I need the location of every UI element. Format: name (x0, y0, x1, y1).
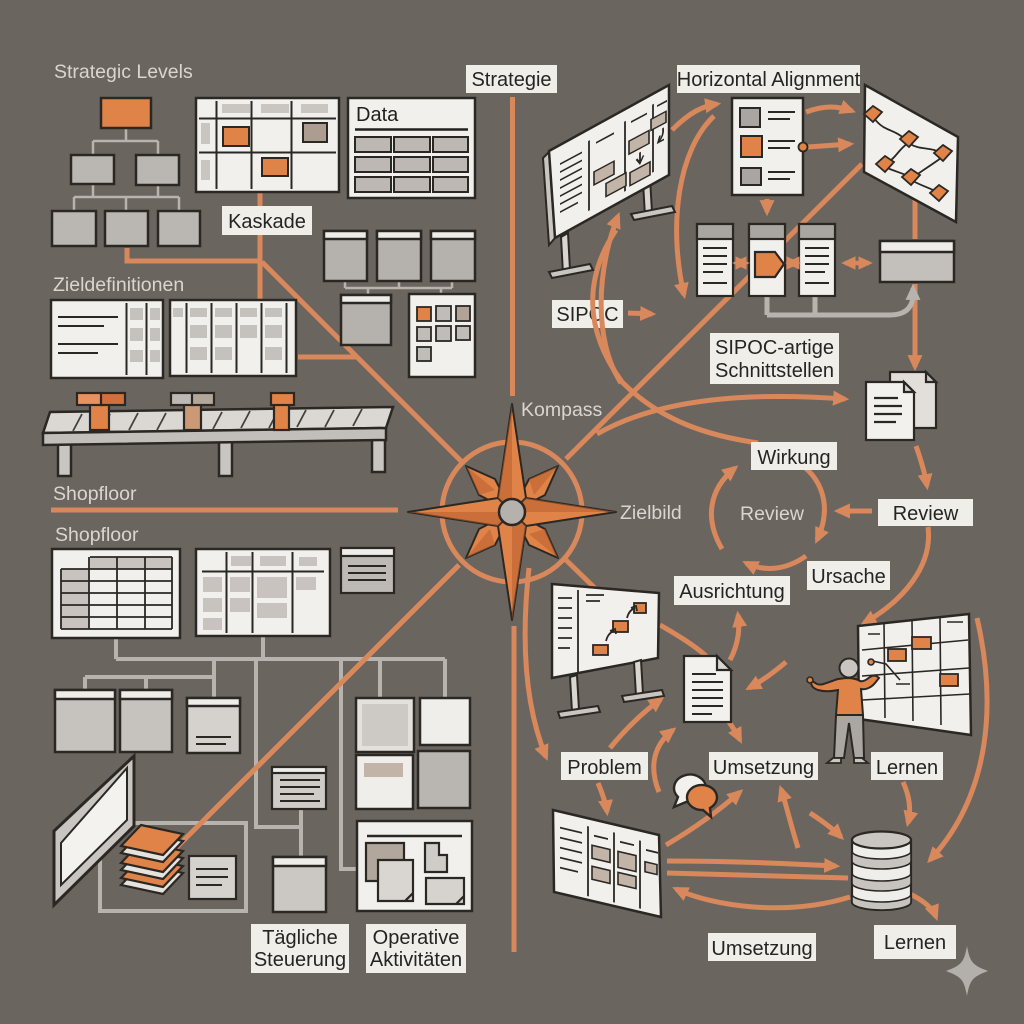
svg-text:SIPOC: SIPOC (556, 304, 618, 326)
svg-text:Ursache: Ursache (811, 566, 885, 588)
svg-text:Shopfloor: Shopfloor (55, 524, 139, 546)
svg-text:SIPOC-artige: SIPOC-artige (715, 337, 834, 359)
svg-text:Lernen: Lernen (876, 757, 938, 779)
svg-text:Wirkung: Wirkung (757, 447, 830, 469)
svg-text:Operative: Operative (373, 927, 460, 949)
svg-text:Strategic Levels: Strategic Levels (54, 61, 193, 83)
svg-text:Kaskade: Kaskade (228, 211, 306, 233)
svg-text:Strategie: Strategie (471, 69, 551, 91)
svg-text:Review: Review (893, 503, 959, 525)
svg-text:Data: Data (356, 104, 399, 126)
svg-text:Zieldefinitionen: Zieldefinitionen (53, 274, 184, 296)
svg-text:Steuerung: Steuerung (254, 949, 346, 971)
svg-text:Horizontal Alignment: Horizontal Alignment (677, 69, 861, 91)
svg-text:Umsetzung: Umsetzung (711, 938, 812, 960)
svg-text:Problem: Problem (567, 757, 641, 779)
svg-text:Tägliche: Tägliche (262, 927, 338, 949)
svg-text:Review: Review (740, 503, 805, 525)
svg-text:Shopfloor: Shopfloor (53, 483, 137, 505)
svg-text:Umsetzung: Umsetzung (713, 757, 814, 779)
svg-text:Zielbild: Zielbild (620, 502, 682, 524)
svg-text:Aktivitäten: Aktivitäten (370, 949, 462, 971)
svg-text:Ausrichtung: Ausrichtung (679, 581, 785, 603)
svg-text:Lernen: Lernen (884, 932, 946, 954)
svg-text:Kompass: Kompass (521, 399, 603, 421)
svg-text:Schnittstellen: Schnittstellen (715, 360, 834, 382)
